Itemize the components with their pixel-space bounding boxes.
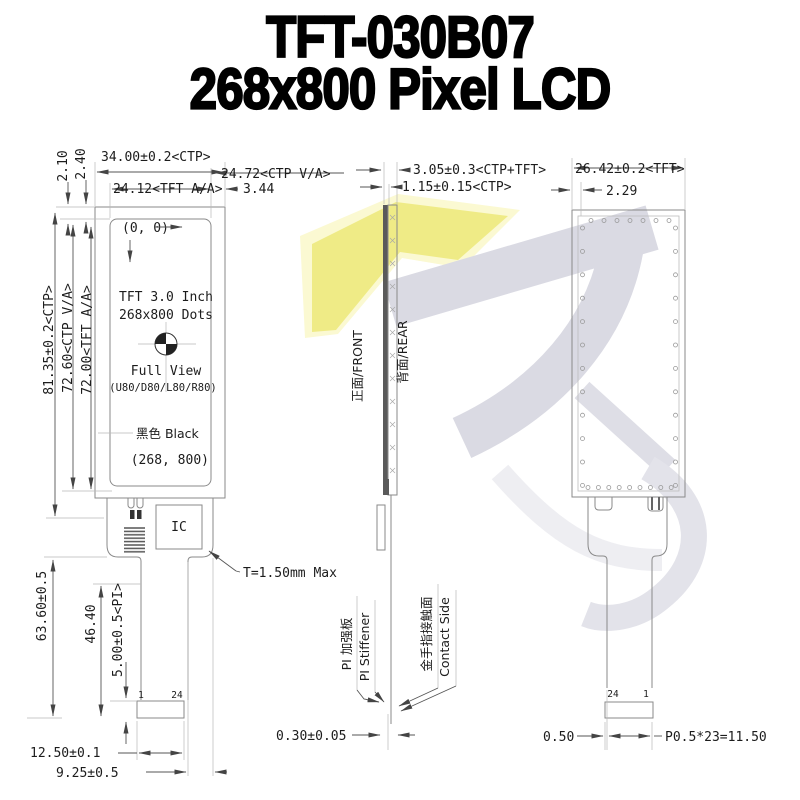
panel-spec-line1: TFT 3.0 Inch (119, 290, 213, 305)
rear-notch-right (648, 497, 663, 511)
dim-connector-width: 12.50±0.1 (30, 746, 100, 761)
origin-label: (0, 0) (122, 221, 169, 236)
front-pin1-label: 1 (138, 690, 144, 701)
rear-connector-pad (605, 702, 653, 718)
dim-pi-length: 5.00±0.5<PI> (111, 583, 126, 677)
dim-height-ctp: 81.35±0.2<CTP> (42, 285, 57, 395)
side-ic-bump (377, 505, 385, 550)
fpc-coil (124, 527, 145, 554)
dim-connector-offset: 9.25±0.5 (56, 766, 119, 781)
datasheet-page: (0, 0) TFT 3.0 Inch 268x800 Dots Full Vi… (0, 0, 800, 800)
stiffener-label-en: PI Stiffener (357, 612, 372, 681)
front-pin24-label: 24 (171, 690, 183, 701)
side-panel-glass (383, 205, 388, 495)
corner-coord-label: (268, 800) (131, 453, 209, 468)
page-title-resolution: 268x800 Pixel LCD (48, 55, 752, 121)
dim-total-thickness: 3.05±0.3<CTP+TFT> (413, 163, 546, 178)
rear-pin1-label: 1 (643, 689, 649, 700)
stiffener-label-cn: PI 加强板 (339, 617, 354, 670)
front-side-label: 正面/FRONT (350, 330, 365, 402)
rear-side-label: 背面/REAR (395, 320, 410, 383)
dim-width-ctp-va: 24.72<CTP V/A> (221, 167, 331, 182)
dim-height-ctp-va: 72.60<CTP V/A> (61, 283, 76, 393)
front-connector-pad (137, 701, 184, 718)
thickness-note: T=1.50mm Max (243, 566, 337, 581)
dim-height-tft-aa: 72.00<TFT A/A> (80, 285, 95, 395)
front-view: (0, 0) TFT 3.0 Inch 268x800 Dots Full Vi… (95, 207, 337, 718)
dim-edge-right: 3.44 (243, 182, 274, 197)
color-label: 黑色 Black (136, 426, 200, 441)
view-mode-label: Full View (131, 364, 202, 379)
dim-ctp-thickness: 1.15±0.15<CTP> (402, 180, 512, 195)
dim-width-tft-aa: 24.12<TFT A/A> (113, 182, 223, 197)
rear-fpc-left-edge (588, 497, 607, 688)
dim-pin-pitch: P0.5*23=11.50 (665, 730, 767, 745)
contact-label-cn: 金手指接触面 (419, 596, 434, 671)
dim-tail-mid: 46.40 (84, 604, 99, 643)
dim-rear-edge: 2.29 (606, 184, 637, 199)
fpc-component-pins (128, 498, 143, 508)
dim-top-b: 2.10 (56, 150, 71, 181)
panel-spec-line2: 268x800 Dots (119, 308, 213, 323)
rear-notch-left (595, 497, 612, 510)
dim-tail-total: 63.60±0.5 (35, 571, 50, 641)
dim-width-ctp: 34.00±0.2<CTP> (101, 150, 211, 165)
dim-rear-width: 26.42±0.2<TFT> (575, 162, 685, 177)
dim-fpc-thickness: 0.30±0.05 (276, 729, 346, 744)
fpc-right-edge (188, 498, 213, 700)
rear-pin24-label: 24 (607, 689, 619, 700)
view-angles-label: (U80/D80/L80/R80) (109, 382, 216, 394)
ic-label: IC (171, 520, 187, 535)
company-logo-watermark (300, 194, 694, 618)
dim-top-a: 2.40 (74, 148, 89, 179)
dim-pad-gap: 0.50 (543, 730, 574, 745)
contact-label-en: Contact Side (437, 597, 452, 677)
